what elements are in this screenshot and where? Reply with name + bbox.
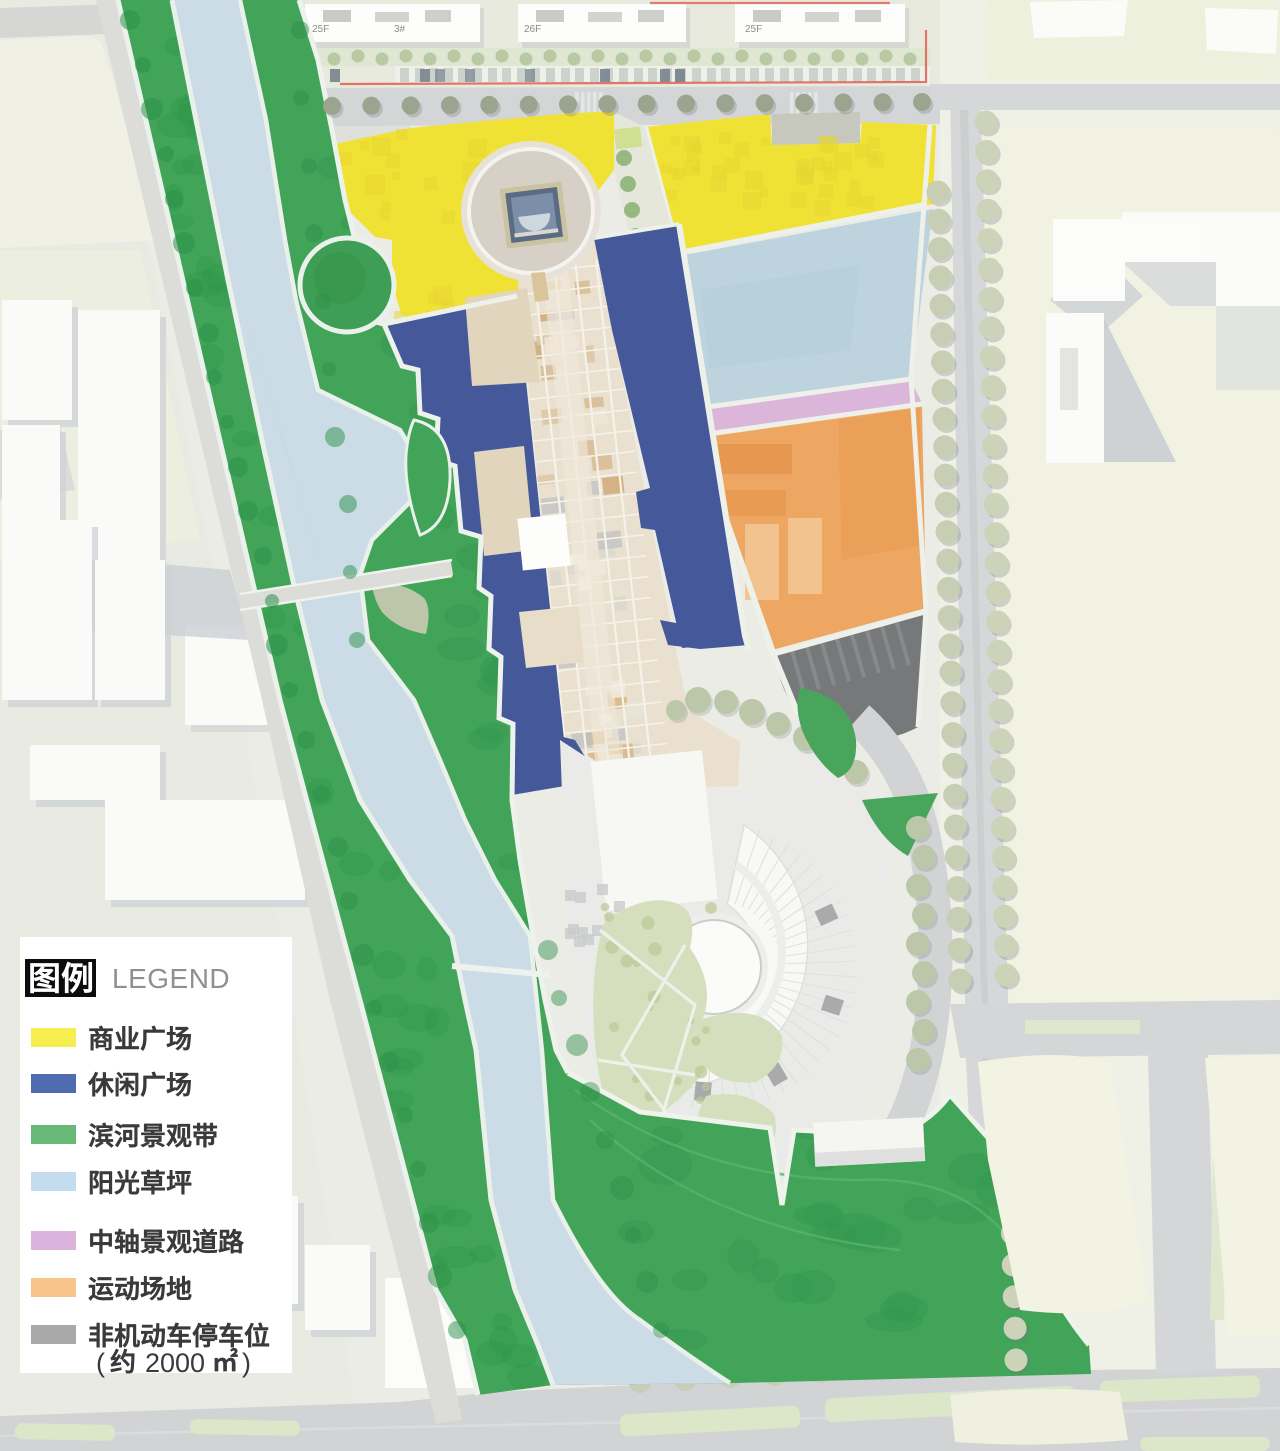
svg-text:25F: 25F — [312, 24, 329, 35]
svg-text:2000: 2000 — [145, 1348, 205, 1378]
svg-text:): ) — [242, 1348, 251, 1378]
svg-text:3#: 3# — [394, 24, 406, 35]
svg-text:LEGEND: LEGEND — [112, 963, 230, 994]
svg-text:26F: 26F — [524, 24, 541, 35]
svg-text:25F: 25F — [745, 24, 762, 35]
svg-text:(: ( — [96, 1348, 105, 1378]
